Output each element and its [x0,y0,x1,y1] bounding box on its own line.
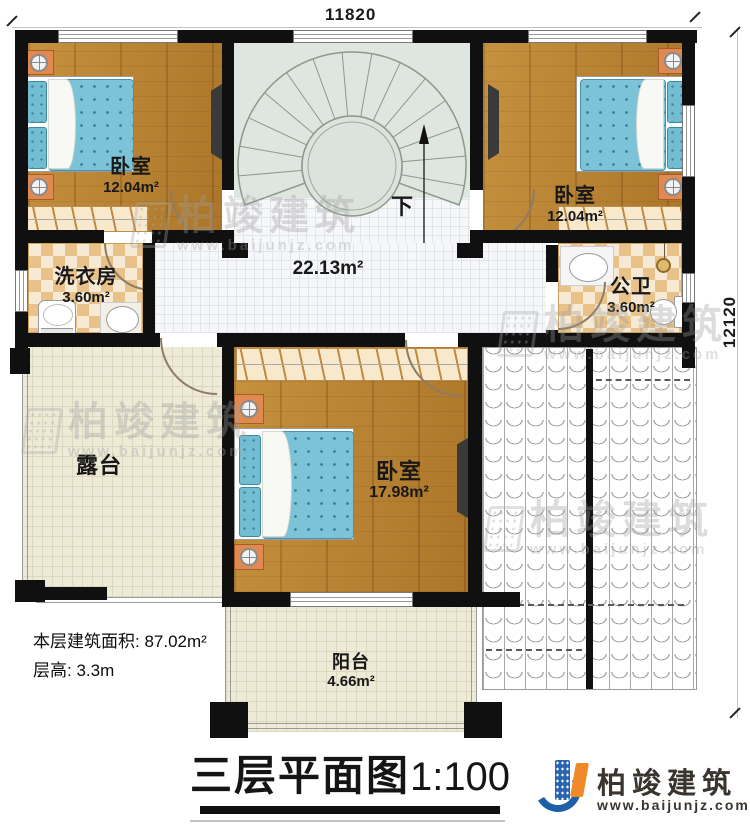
nightstand [234,394,264,424]
roof-dashed-line [508,604,684,606]
room-name: 卧室 [525,185,625,208]
room-label-bedroom-top-right: 卧室 12.04m² [525,185,625,225]
dimension-tick [729,707,740,718]
lamp-icon [664,178,682,196]
wall-segment [546,330,558,347]
room-area: 3.60m² [581,299,681,316]
bed [234,428,354,540]
room-area: 12.04m² [81,179,181,196]
wall-segment [152,230,222,243]
corner-post [210,702,248,738]
pillow [239,487,261,537]
brand-building-icon [555,760,570,800]
spiral-staircase [230,40,480,260]
wall-segment [413,592,520,607]
floor-area-note: 本层建筑面积: 87.02m² [33,627,207,652]
room-area: 22.13m² [278,258,378,280]
corner-post [464,702,502,738]
window [58,30,178,43]
room-name: 公卫 [581,276,681,299]
tv [488,84,499,160]
room-name: 露台 [49,453,149,478]
floor-plan: 下 [0,0,750,833]
wall-segment [457,243,483,258]
room-label-laundry: 洗衣房 3.60m² [36,266,136,306]
room-label-hall: 22.13m² [278,258,378,280]
brand-url: www.baijunjz.com [597,797,750,813]
roof-dashed-line [486,649,582,651]
wall-segment [143,243,155,333]
dimension-right: 12120 [720,295,740,349]
wall-segment [15,230,104,243]
balcony-railing [210,728,500,729]
roof-ridge [586,349,593,689]
wall-segment [468,347,482,592]
title-underline-thin [190,820,505,822]
wall-segment [222,347,234,592]
window [293,30,413,43]
room-label-bedroom-top-left: 卧室 12.04m² [81,156,181,196]
lamp-icon [664,52,682,70]
room-name: 阳台 [301,652,401,673]
room-area: 3.60m² [36,289,136,306]
wall-segment [483,230,695,243]
room-label-balcony: 阳台 4.66m² [301,652,401,690]
room-area: 4.66m² [301,673,401,690]
window [15,270,28,312]
room-area: 12.04m² [525,208,625,225]
wall-segment [682,177,695,273]
wall-segment [15,587,107,600]
corner-post [10,348,30,374]
dimension-top: 11820 [325,5,376,25]
pillow [27,81,47,123]
room-name: 洗衣房 [36,266,136,289]
pillow [27,127,47,169]
terrace-railing [22,352,23,598]
pillow [239,435,261,485]
wall-segment [15,333,160,347]
window [528,30,647,43]
nightstand [234,544,264,570]
bed-sheet [262,431,292,537]
wall-segment [458,333,482,347]
title-underline [200,806,500,814]
wall-segment [558,333,695,347]
dimension-line-top [12,27,702,28]
room-label-terrace: 露台 [49,453,149,478]
plan-title: 三层平面图1:100 [150,742,550,803]
lamp-icon [240,400,258,418]
balcony-railing [210,723,500,724]
brand-logo: 柏竣建筑 www.baijunjz.com [505,752,745,827]
brand-building-icon [570,763,589,797]
wall-segment [546,245,558,282]
window [682,273,695,303]
stair-down-label: 下 [384,194,420,219]
dimension-line-right [737,30,738,718]
wall-segment [682,30,695,105]
window [290,592,413,607]
dimension-tick [689,11,700,22]
tv [457,438,468,518]
sink-basin [106,306,139,333]
plan-title-text: 三层平面图 [190,752,410,799]
wall-segment [470,42,483,190]
shower-head-icon [656,258,671,273]
nightstand [24,50,54,75]
lamp-icon [240,548,258,566]
bed-sheet [636,79,664,169]
terrace-railing [27,352,28,598]
wall-segment [222,243,248,258]
plan-title-scale: 1:100 [410,755,510,799]
floor-height-note: 层高: 3.3m [33,656,114,681]
lamp-icon [30,178,48,196]
room-name: 卧室 [81,156,181,179]
roof-dashed-line [596,379,690,381]
room-area: 17.98m² [349,484,449,502]
room-name: 卧室 [349,459,449,484]
dimension-tick [6,15,17,26]
wall-segment [222,42,234,190]
nightstand [24,174,54,200]
lamp-icon [30,54,48,72]
terrace-railing [36,602,222,603]
washer-lid [43,304,73,326]
room-label-bedroom-main: 卧室 17.98m² [349,459,449,503]
bed-sheet [48,79,76,169]
laundry-sink [100,302,142,334]
dimension-tick [729,26,740,37]
bed [576,76,688,172]
wall-segment [222,592,290,607]
room-label-bathroom: 公卫 3.60m² [581,276,681,316]
wall-segment [217,333,234,347]
window [682,105,695,177]
tv [211,84,222,160]
wall-segment [234,333,405,347]
wall-segment [178,30,293,43]
brand-name: 柏竣建筑 [597,760,737,802]
wardrobe [27,206,148,232]
